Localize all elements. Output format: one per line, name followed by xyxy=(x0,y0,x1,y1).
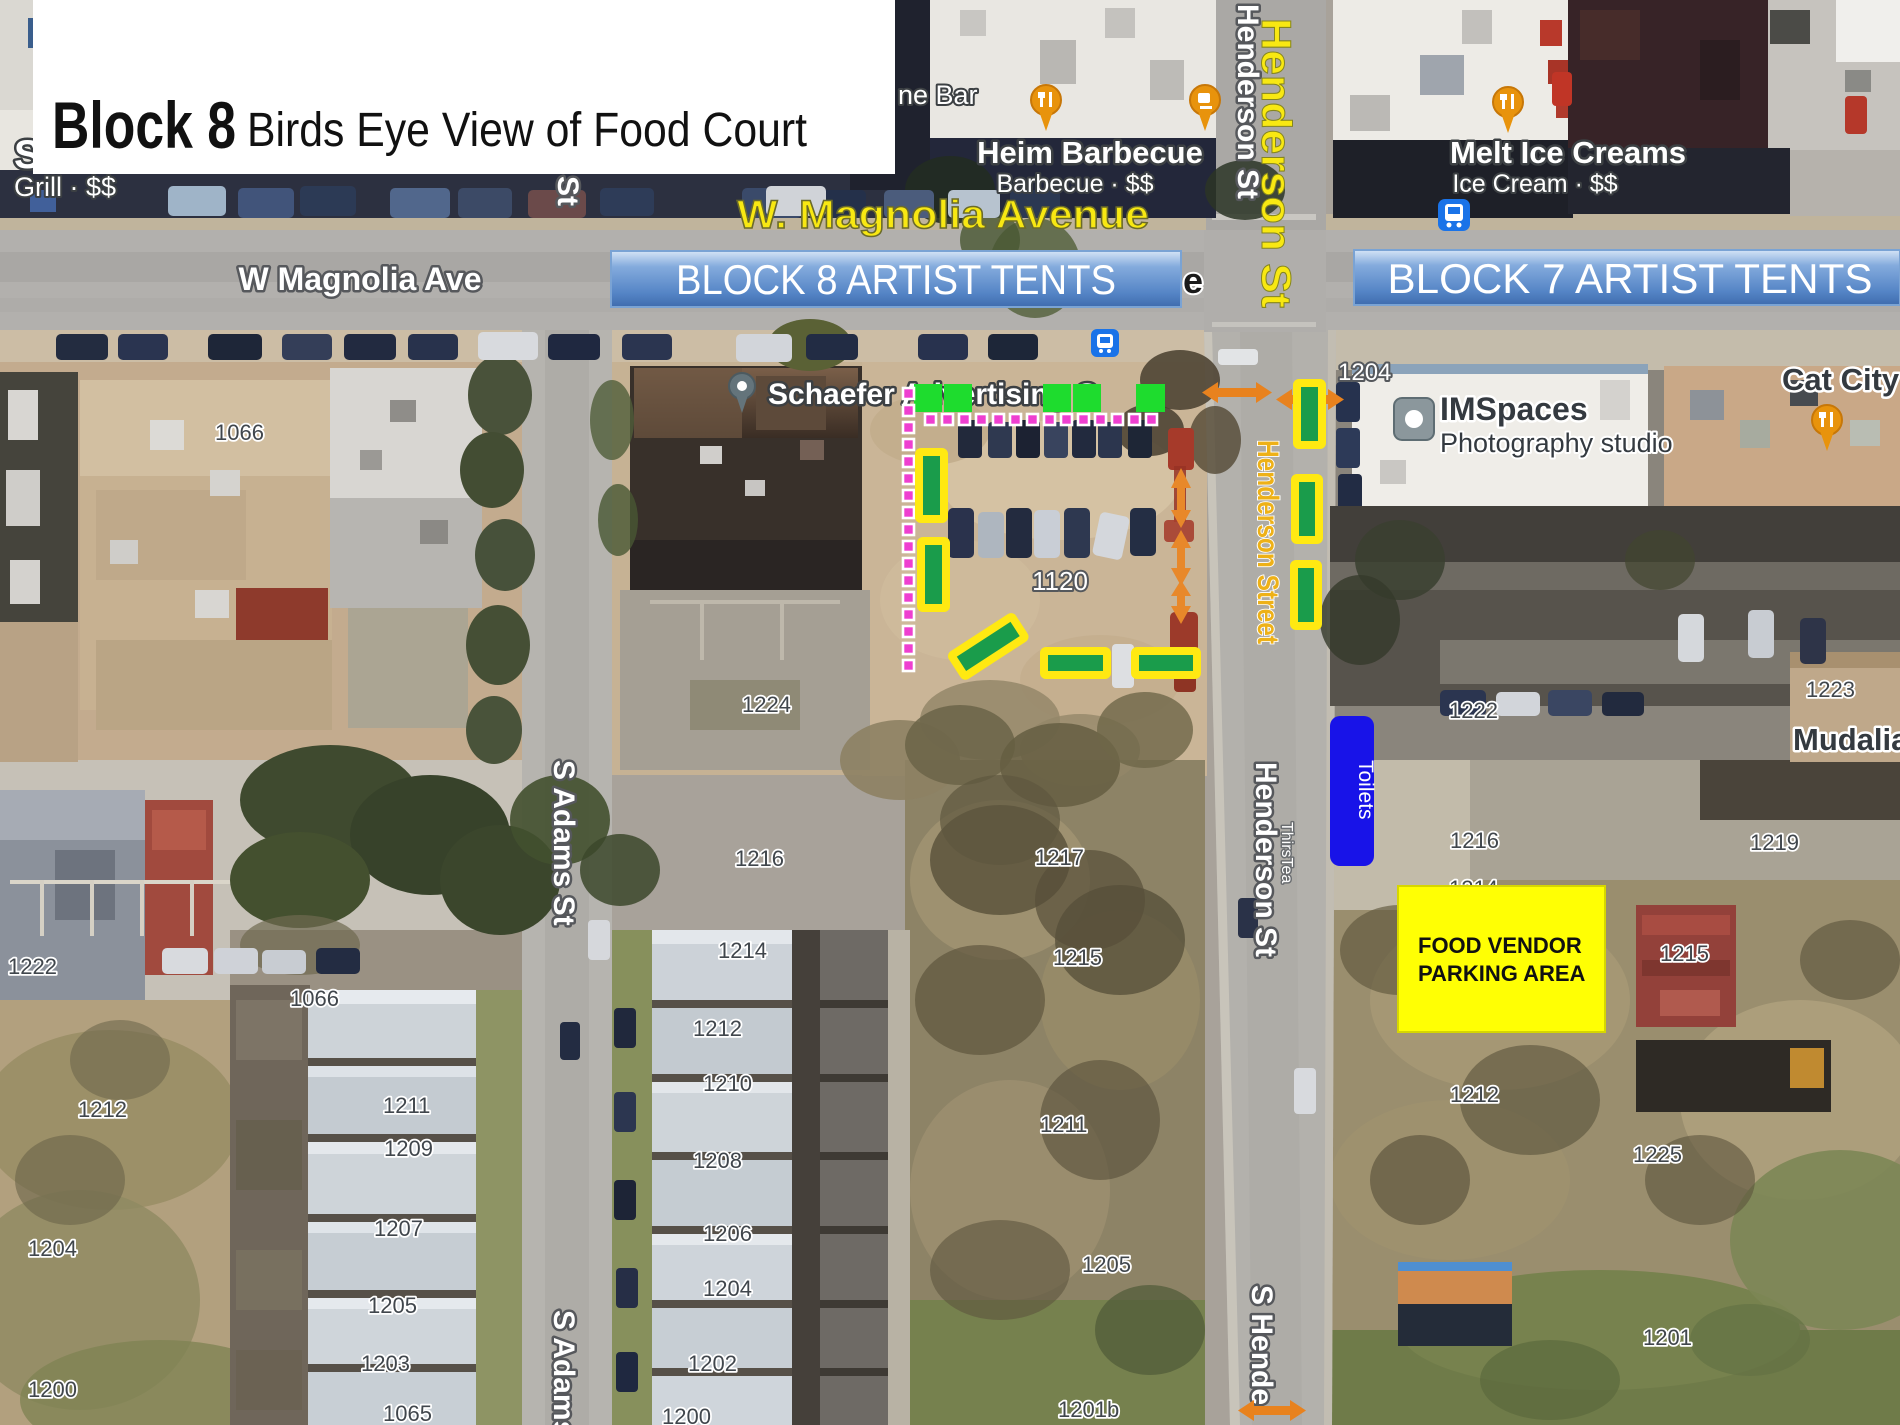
svg-text:FOOD VENDOR: FOOD VENDOR xyxy=(1418,933,1582,958)
svg-text:1204: 1204 xyxy=(28,1236,77,1261)
svg-text:1222: 1222 xyxy=(1449,698,1498,723)
svg-text:1066: 1066 xyxy=(290,986,339,1011)
svg-text:Henderson St: Henderson St xyxy=(1253,18,1300,308)
svg-text:S Adams St: S Adams St xyxy=(547,760,580,926)
svg-text:1205: 1205 xyxy=(368,1293,417,1318)
svg-text:1211: 1211 xyxy=(383,1093,430,1118)
svg-text:BLOCK 8 ARTIST TENTS: BLOCK 8 ARTIST TENTS xyxy=(676,256,1116,303)
svg-text:Henderson Street: Henderson Street xyxy=(1251,440,1284,644)
svg-text:1212: 1212 xyxy=(78,1097,127,1122)
svg-text:Ice Cream · $$: Ice Cream · $$ xyxy=(1452,170,1617,198)
svg-text:1217: 1217 xyxy=(1035,845,1084,870)
svg-text:1205: 1205 xyxy=(1082,1252,1131,1277)
svg-text:1203: 1203 xyxy=(361,1351,410,1376)
svg-text:Grill · $$: Grill · $$ xyxy=(14,172,116,202)
svg-text:1215: 1215 xyxy=(1053,945,1102,970)
svg-text:1224: 1224 xyxy=(742,692,791,717)
svg-text:1216: 1216 xyxy=(1450,828,1499,853)
svg-text:1225: 1225 xyxy=(1633,1142,1682,1167)
svg-text:1212: 1212 xyxy=(1450,1082,1499,1107)
svg-text:1206: 1206 xyxy=(703,1221,752,1246)
svg-text:IMSpaces: IMSpaces xyxy=(1440,391,1588,427)
svg-text:BLOCK 7 ARTIST TENTS: BLOCK 7 ARTIST TENTS xyxy=(1388,255,1873,302)
svg-text:1066: 1066 xyxy=(215,420,264,445)
svg-text:1200: 1200 xyxy=(28,1377,77,1402)
svg-text:1211: 1211 xyxy=(1040,1112,1087,1137)
svg-text:Heim Barbecue: Heim Barbecue xyxy=(977,135,1203,170)
svg-text:Toilets: Toilets xyxy=(1354,760,1377,820)
svg-text:1120: 1120 xyxy=(1032,566,1088,596)
svg-text:Mudalia: Mudalia xyxy=(1793,722,1900,757)
svg-text:1215: 1215 xyxy=(1660,941,1709,966)
svg-text:PARKING AREA: PARKING AREA xyxy=(1418,961,1586,986)
svg-text:1223: 1223 xyxy=(1806,677,1855,702)
svg-text:1209: 1209 xyxy=(384,1136,433,1161)
svg-text:1214: 1214 xyxy=(718,938,767,963)
svg-text:1202: 1202 xyxy=(688,1351,737,1376)
svg-text:1212: 1212 xyxy=(693,1016,742,1041)
svg-text:Henderson St: Henderson St xyxy=(1249,762,1282,957)
svg-text:e: e xyxy=(1183,260,1203,301)
svg-text:Cat City C: Cat City C xyxy=(1782,362,1900,397)
svg-text:S Adams: S Adams xyxy=(547,1310,580,1425)
svg-text:W Magnolia Ave: W Magnolia Ave xyxy=(239,261,482,297)
svg-text:1222: 1222 xyxy=(8,954,57,979)
svg-text:Birds Eye View of Food Court: Birds Eye View of Food Court xyxy=(247,104,807,157)
svg-text:1210: 1210 xyxy=(703,1071,752,1096)
svg-text:1208: 1208 xyxy=(693,1148,742,1173)
svg-text:1201b: 1201b xyxy=(1058,1397,1119,1422)
svg-text:1216: 1216 xyxy=(735,846,784,871)
svg-text:1204: 1204 xyxy=(1338,359,1391,386)
svg-text:S Hende: S Hende xyxy=(1245,1285,1278,1405)
svg-text:1065: 1065 xyxy=(383,1401,432,1425)
svg-text:1207: 1207 xyxy=(374,1216,423,1241)
svg-text:W. Magnolia Avenue: W. Magnolia Avenue xyxy=(737,193,1149,237)
svg-text:St: St xyxy=(551,176,584,206)
svg-text:1201: 1201 xyxy=(1643,1325,1692,1350)
svg-text:1204: 1204 xyxy=(703,1276,752,1301)
svg-text:1200: 1200 xyxy=(662,1404,711,1425)
svg-text:ne Bar: ne Bar xyxy=(898,80,978,110)
svg-text:Block 8: Block 8 xyxy=(52,88,236,162)
svg-text:Melt Ice Creams: Melt Ice Creams xyxy=(1450,135,1686,170)
svg-text:Photography studio: Photography studio xyxy=(1440,428,1673,458)
svg-text:ThirsTea: ThirsTea xyxy=(1278,822,1295,883)
svg-text:1219: 1219 xyxy=(1750,830,1799,855)
